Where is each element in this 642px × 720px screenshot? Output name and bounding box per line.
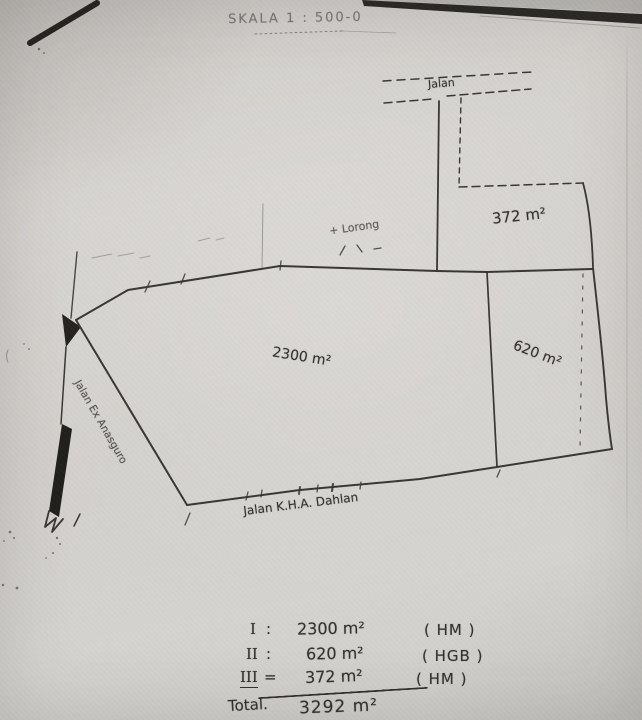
summary-row2-tenure: ( HGB ) <box>422 647 483 665</box>
scale-underline <box>255 31 396 34</box>
summary-row2-sep: : <box>266 645 271 663</box>
main-parcel-outline <box>76 266 612 505</box>
summary-total-label: Total. <box>228 695 269 715</box>
north-boundary <box>76 266 592 320</box>
scan-artifact-top-left-streak <box>30 3 97 54</box>
road-black-bar <box>49 424 72 517</box>
summary-row3-roman: III <box>240 668 258 688</box>
top-road-label: Jalan <box>428 76 456 91</box>
paper-crease <box>626 25 628 565</box>
scan-artifact-top-right-edge <box>362 0 642 28</box>
top-road-dashed-lines <box>383 72 532 103</box>
summary-row2-roman: II <box>246 645 258 663</box>
summary-row2-value: 620 m² <box>306 643 364 663</box>
summary-total-value: 3292 m² <box>299 696 379 719</box>
driveway-east-dashed <box>459 98 461 187</box>
parcel-iii-boundaries <box>437 98 593 270</box>
scanned-land-sketch-document: SKALA 1 : 500-0 Jalan 372 m² 2300 m² 620… <box>0 0 642 720</box>
parcel-i-ii-divider <box>487 272 497 467</box>
summary-row3-value: 372 m² <box>305 666 363 687</box>
faint-scribbles <box>92 238 224 258</box>
scale-note: SKALA 1 : 500-0 <box>228 10 363 27</box>
driveway-west-line <box>437 101 439 270</box>
summary-row1-sep: : <box>266 620 271 638</box>
summary-row1-roman: I <box>250 620 256 638</box>
left-road-marks <box>7 252 82 532</box>
summary-row3-sep: = <box>264 668 277 686</box>
summary-row3-tenure: ( HM ) <box>416 670 467 688</box>
south-boundary <box>187 449 612 505</box>
parcel-iii-east-line <box>583 183 593 267</box>
scan-specks <box>2 531 61 590</box>
summary-row1-value: 2300 m² <box>297 618 365 638</box>
summary-row1-tenure: ( HM ) <box>424 621 475 639</box>
parcel-ii-east-curve <box>593 268 612 449</box>
parcel-iii-north-dashed <box>459 183 583 187</box>
parcel-ii-internal-dashed <box>580 274 583 448</box>
